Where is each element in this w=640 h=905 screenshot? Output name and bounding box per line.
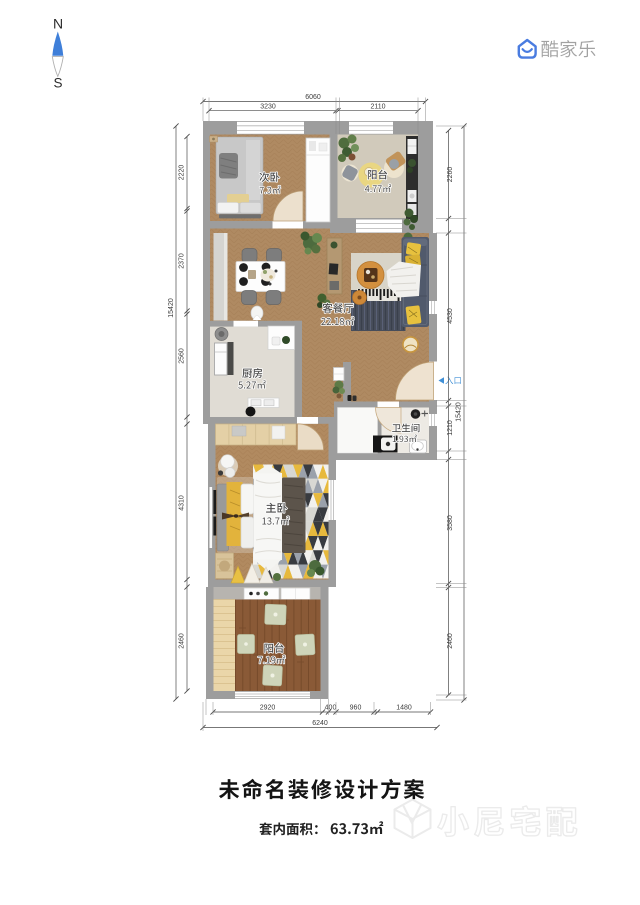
svg-text:2920: 2920 <box>260 705 276 712</box>
svg-text:6240: 6240 <box>312 720 328 727</box>
svg-text:960: 960 <box>350 705 362 712</box>
svg-text:4530: 4530 <box>447 308 454 324</box>
svg-text:2370: 2370 <box>179 253 186 269</box>
svg-text:1210: 1210 <box>447 420 454 436</box>
svg-text:15420: 15420 <box>168 298 175 318</box>
svg-text:15420: 15420 <box>456 402 463 422</box>
svg-text:400: 400 <box>325 705 337 712</box>
svg-text:2110: 2110 <box>370 103 385 110</box>
svg-text:2460: 2460 <box>447 633 454 649</box>
svg-text:2220: 2220 <box>179 165 186 181</box>
svg-text:2460: 2460 <box>179 633 186 649</box>
svg-text:2260: 2260 <box>447 167 454 183</box>
svg-text:6060: 6060 <box>305 94 321 101</box>
svg-text:4310: 4310 <box>179 495 186 511</box>
svg-text:2560: 2560 <box>179 348 186 364</box>
svg-text:1480: 1480 <box>396 705 412 712</box>
svg-text:S: S <box>53 76 62 91</box>
svg-text:3230: 3230 <box>260 103 276 110</box>
svg-text:3580: 3580 <box>447 515 454 531</box>
svg-text:N: N <box>53 16 63 32</box>
